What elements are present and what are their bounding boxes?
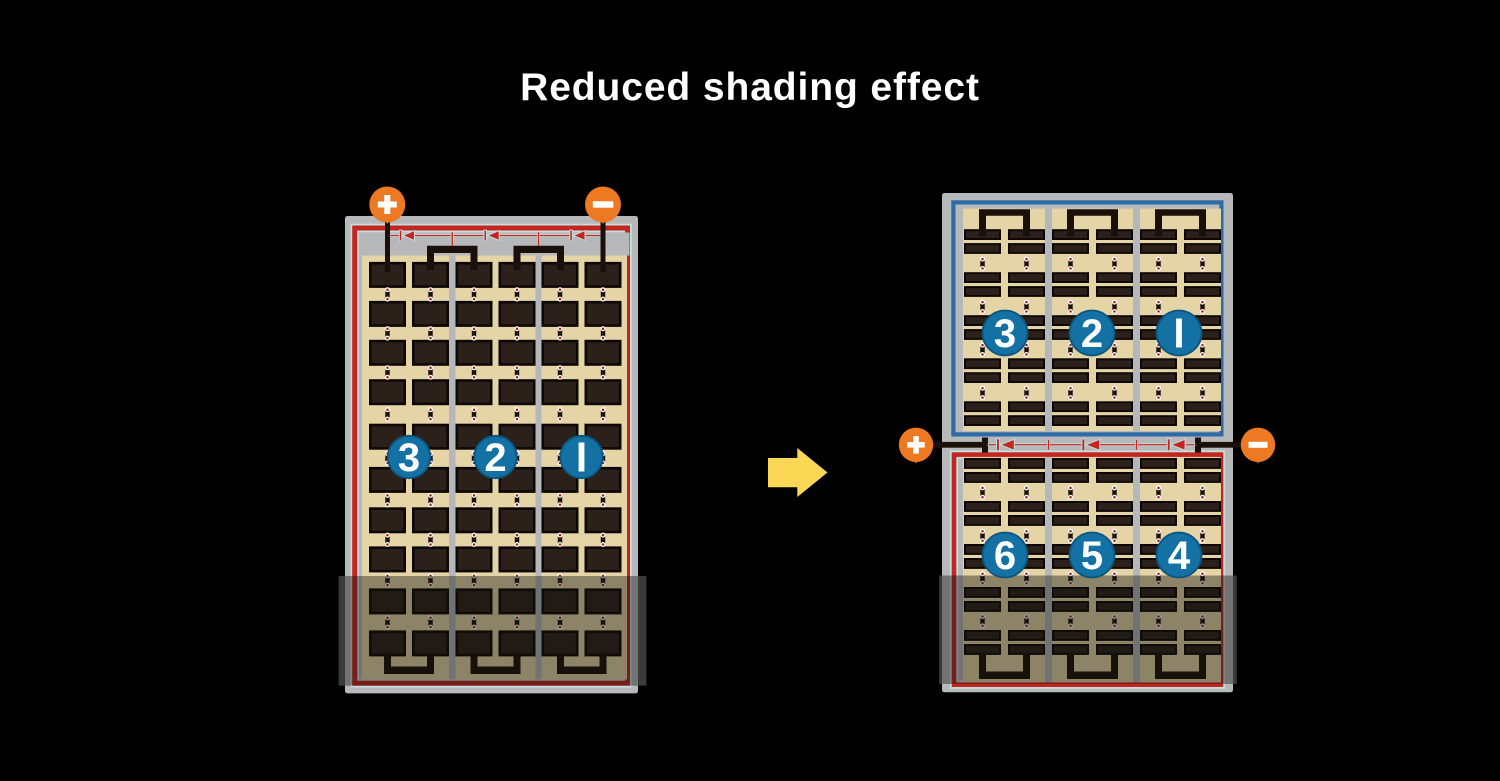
- svg-text:5: 5: [1081, 534, 1103, 578]
- svg-text:3: 3: [994, 312, 1016, 356]
- svg-text:4: 4: [1168, 534, 1191, 578]
- svg-text:2: 2: [1081, 312, 1103, 356]
- svg-text:2: 2: [484, 436, 506, 480]
- svg-text:Reduced shading effect: Reduced shading effect: [520, 66, 980, 109]
- svg-text:3: 3: [398, 436, 420, 480]
- svg-text:6: 6: [994, 534, 1016, 578]
